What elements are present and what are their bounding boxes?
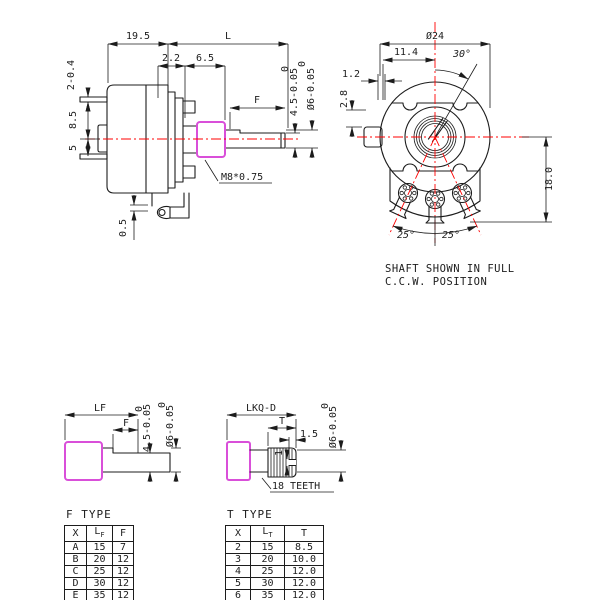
dim-label-18: 18.0 [544, 167, 555, 191]
dim-label-19-5: 19.5 [126, 31, 150, 42]
header-cell-x: X [65, 526, 87, 542]
dim-label-30deg: 30° [452, 49, 471, 60]
table-cell: 20 [87, 554, 113, 566]
dim-label-shaft-dia: Ø6-0.05 [305, 68, 317, 110]
f-bushing-highlight [65, 442, 102, 480]
thread-label: M8*0.75 [221, 172, 263, 183]
slot-direction-line [435, 64, 477, 137]
table-cell: 15 [251, 542, 285, 554]
table-cell: 12.0 [285, 590, 324, 600]
header-cell-lt: LT [251, 526, 285, 542]
dim-label-2-8: 2.8 [339, 90, 350, 108]
table-header-row: X LF F [65, 526, 134, 542]
dim-label-1-2: 1.2 [342, 69, 360, 80]
table-cell: 12 [113, 554, 134, 566]
table-cell: E [65, 590, 87, 600]
table-cell: 20 [251, 554, 285, 566]
table-cell: 12.0 [285, 566, 324, 578]
f-shaft-detail: LF F 0 4.5-0.05 0 Ø6-0.05 [65, 402, 181, 482]
table-cell: 8.5 [285, 542, 324, 554]
front-view: Ø24 11.4 30° 1.2 2.8 18.0 25° 25° SHAFT … [339, 22, 555, 288]
dim-label-LF: LF [94, 403, 106, 414]
table-cell: 7 [113, 542, 134, 554]
table-cell: 5 [226, 578, 251, 590]
table-cell: 35 [87, 590, 113, 600]
dim-label-1: 1 [274, 450, 285, 456]
table-cell: B [65, 554, 87, 566]
front-centerlines [357, 22, 532, 243]
header-cell-f: F [113, 526, 134, 542]
table-row: E3512 [65, 590, 134, 600]
dim-label-flat: 4.5-0.05 [289, 68, 300, 116]
table-cell: 6 [226, 590, 251, 600]
t-bushing-highlight [227, 442, 250, 480]
bushing-highlight [197, 122, 225, 157]
lug-hole [159, 210, 165, 216]
ground-lug [152, 193, 189, 219]
header-cell-lf: LF [87, 526, 113, 542]
dim-label-5: 5 [68, 145, 79, 151]
table-cell: D [65, 578, 87, 590]
shaft-note-line2: C.C.W. POSITION [385, 276, 487, 288]
f-type-table-title: F TYPE [66, 508, 112, 521]
table-cell: 10.0 [285, 554, 324, 566]
shaft-slot [429, 119, 448, 142]
table-cell: 12.0 [285, 578, 324, 590]
table-cell: 12 [113, 590, 134, 600]
table-cell: 25 [251, 566, 285, 578]
dim-label-F2: F [123, 418, 129, 429]
t-dia-dim: Ø6-0.05 [327, 406, 339, 448]
table-row: 63512.0 [226, 590, 324, 600]
t-type-table-title: T TYPE [227, 508, 273, 521]
table-header-row: X LT T [226, 526, 324, 542]
dim-label-25-left: 25° [397, 230, 415, 241]
table-cell: 25 [87, 566, 113, 578]
table-row: 32010.0 [226, 554, 324, 566]
dim-label-T: T [279, 416, 285, 427]
f-flat-dim: 4.5-0.05 [142, 404, 153, 452]
dim-label-L: L [225, 31, 231, 42]
table-row: 2158.5 [226, 542, 324, 554]
table-cell: 2 [226, 542, 251, 554]
dim-label-0-5: 0.5 [118, 219, 129, 237]
table-row: B2012 [65, 554, 134, 566]
t-type-table: X LT T 2158.532010.042512.053012.063512.… [225, 525, 324, 600]
dim-label-6-5: 6.5 [196, 53, 214, 64]
dim-label-11-4: 11.4 [394, 47, 418, 58]
t-shaft-detail: LKQ-D T 1.5 1 0 Ø6-0.05 18 TEETH [227, 403, 346, 492]
dim-label-25-right: 25° [442, 230, 460, 241]
dim-label-F: F [254, 95, 260, 106]
table-cell: 30 [251, 578, 285, 590]
table-row: A157 [65, 542, 134, 554]
technical-drawing-canvas: 19.5 L 2.2 6.5 2-0.4 8.5 5 F 0 4.5-0.05 … [0, 0, 600, 600]
table-cell: 15 [87, 542, 113, 554]
table-row: C2512 [65, 566, 134, 578]
side-view: 19.5 L 2.2 6.5 2-0.4 8.5 5 F 0 4.5-0.05 … [66, 31, 318, 240]
table-row: D3012 [65, 578, 134, 590]
table-row: 53012.0 [226, 578, 324, 590]
header-cell-x: X [226, 526, 251, 542]
table-row: 42512.0 [226, 566, 324, 578]
table-cell: 3 [226, 554, 251, 566]
shaft-tol-upper: 0 [297, 61, 308, 67]
dim-label-8-5: 8.5 [68, 111, 79, 129]
table-cell: 35 [251, 590, 285, 600]
dim-label-2-2: 2.2 [162, 53, 180, 64]
table-cell: 30 [87, 578, 113, 590]
dim-label-dia24: Ø24 [426, 30, 444, 42]
dim-label-lkqd: LKQ-D [246, 403, 276, 414]
slot-clear [289, 460, 296, 466]
table-cell: A [65, 542, 87, 554]
f-type-table: X LF F A157B2012C2512D3012E3512 [64, 525, 134, 600]
table-cell: 4 [226, 566, 251, 578]
dim-label-pin: 2-0.4 [66, 60, 77, 90]
f-shaft-outline [102, 448, 170, 472]
table-cell: C [65, 566, 87, 578]
table-cell: 12 [113, 566, 134, 578]
f-dia-dim: Ø6-0.05 [164, 405, 176, 447]
dim-label-1-5: 1.5 [300, 429, 318, 440]
terminal-pins [80, 97, 107, 159]
table-cell: 12 [113, 578, 134, 590]
shaft-note-line1: SHAFT SHOWN IN FULL [385, 263, 515, 275]
header-cell-t: T [285, 526, 324, 542]
teeth-note: 18 TEETH [272, 481, 320, 492]
mount-plates [168, 92, 197, 188]
